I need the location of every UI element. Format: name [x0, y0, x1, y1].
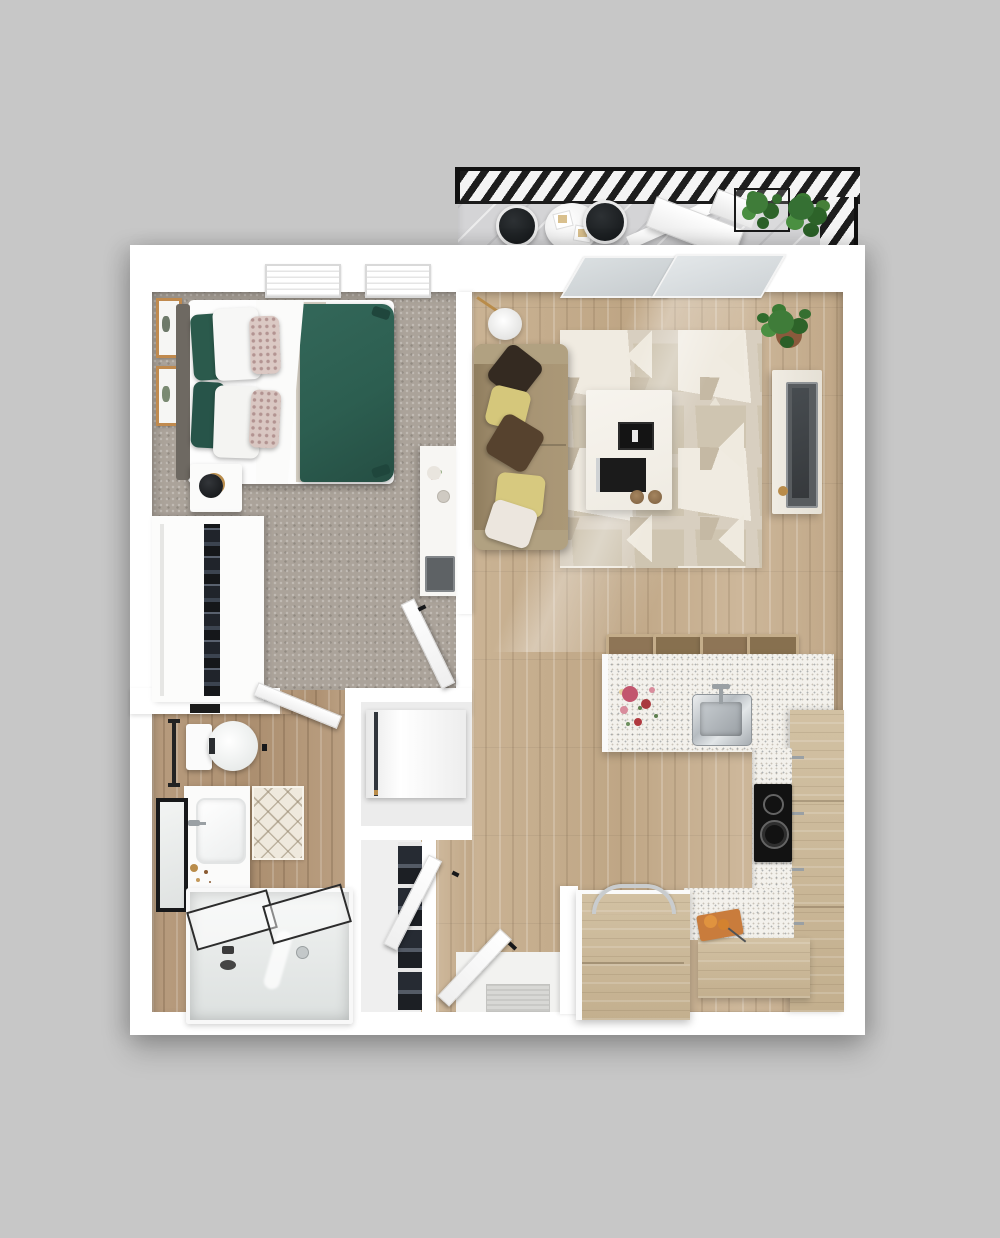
washer-door-seam	[374, 712, 378, 796]
bathroom-wall-shelf	[190, 704, 220, 713]
desk-flowers	[427, 466, 441, 480]
toast-on-plate	[558, 215, 567, 223]
floral-accent-pillow	[249, 389, 282, 448]
book-spine-mark	[632, 430, 638, 442]
bedroom-living-divider-wall	[456, 292, 472, 614]
bed-headboard	[176, 304, 190, 480]
cabinet-seam	[790, 800, 844, 802]
balcony-plant	[788, 196, 814, 220]
toilet-bowl	[208, 721, 258, 771]
doormat	[486, 984, 550, 1012]
washer-dryer	[366, 710, 466, 798]
cooktop-burner	[760, 820, 789, 849]
wardrobe-clothes-rail	[204, 524, 220, 696]
floor-lamp-shade	[488, 308, 522, 340]
framed-mirror	[156, 798, 188, 912]
towel-bar-cap	[168, 783, 180, 787]
console-knob	[778, 486, 788, 496]
balcony-plant	[746, 192, 768, 214]
green-duvet	[300, 304, 394, 482]
tv-screen	[792, 388, 809, 498]
bathroom-door-handle	[262, 744, 267, 751]
towel-bar	[172, 722, 176, 784]
cabinet-handle	[792, 756, 804, 759]
coaster-cup	[630, 490, 644, 504]
bedroom-window	[265, 264, 341, 298]
art-motif	[162, 316, 170, 332]
tub-drain	[296, 946, 309, 959]
toilet-seat-hinge	[209, 738, 215, 754]
nook-bottom-wall	[356, 826, 472, 840]
cabinet-seam	[790, 906, 844, 908]
sink-basin	[700, 702, 742, 736]
cabinet-handle	[792, 868, 804, 871]
wardrobe-shelf-edge	[160, 524, 164, 696]
flower-arrangement	[622, 686, 638, 702]
art-motif	[162, 386, 170, 402]
cafe-chair	[583, 200, 627, 244]
desk-cup	[437, 490, 450, 503]
towel-bar-cap	[168, 719, 180, 723]
vanity-accessories	[190, 864, 198, 872]
vanity-faucet-spout	[198, 822, 206, 825]
cooktop-burner	[763, 794, 784, 815]
tub-faucet	[222, 946, 234, 954]
coaster-cup	[648, 490, 662, 504]
bedroom-window	[365, 264, 431, 298]
coffee-table-book	[596, 458, 646, 492]
cafe-chair	[496, 205, 538, 247]
vanity-sink-basin	[196, 798, 246, 864]
cabinet-drawer-seam	[582, 962, 684, 964]
floral-accent-pillow	[249, 315, 281, 374]
table-lamp	[199, 474, 223, 498]
diamond-bath-mat	[252, 786, 304, 860]
laptop	[425, 556, 455, 592]
island-faucet-spout	[719, 688, 723, 704]
tub-faucet-handle	[220, 960, 236, 970]
cabinet-handle	[792, 812, 804, 815]
bottom-cabinet-face	[698, 938, 810, 998]
washer-hinge	[374, 790, 378, 795]
floor-plan-canvas: { "image_type": "3d-apartment-floor-plan…	[0, 0, 1000, 1238]
living-potted-plant	[768, 310, 794, 334]
bread-loaf	[704, 915, 717, 928]
